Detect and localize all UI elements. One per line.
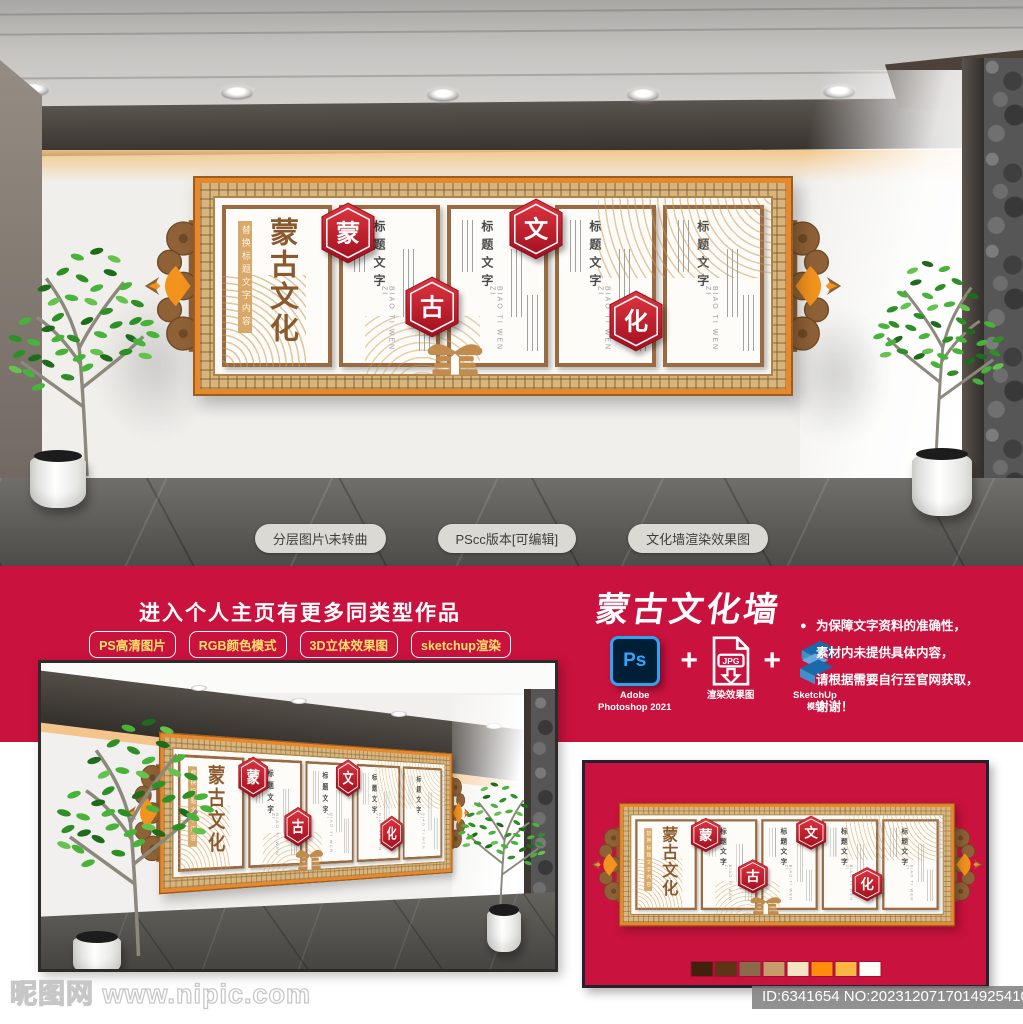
badge-character: 古 [420, 295, 444, 322]
recessed-light [391, 711, 407, 717]
ps-glyph: Ps [623, 650, 646, 672]
panel-pinyin: BIAO TI WEN ZI [326, 813, 333, 861]
render-caption-row: 分层图片\未转曲 PScc版本[可编辑] 文化墙渲染效果图 [0, 524, 1023, 553]
badge-character: 蒙 [336, 221, 360, 248]
color-swatch [691, 962, 712, 976]
arc-decoration [846, 814, 944, 860]
badge-character: 化 [624, 308, 648, 336]
color-palette [691, 962, 880, 976]
plant-pot-left [73, 935, 121, 972]
yurt-icon [294, 844, 324, 872]
recessed-light [222, 87, 252, 98]
render-caption-pill: 分层图片\未转曲 [255, 524, 386, 553]
title-panel: 替换标题文字内容 蒙古文化 [222, 205, 332, 367]
panel-pinyin: BIAO TI WEN ZI [784, 865, 792, 908]
color-swatch [739, 962, 760, 976]
ceiling-seam [0, 26, 1023, 35]
panel-pinyin: BIAO TI WEN ZI [704, 286, 718, 363]
badge-character: 化 [387, 825, 397, 842]
hexagon-badge: 文 [796, 815, 826, 850]
image-id-label: ID:6341654 NO:20231207170149254109 [752, 986, 1023, 1009]
text-placeholder-lines [527, 295, 538, 350]
badge-character: 文 [524, 216, 549, 244]
recessed-light [191, 685, 207, 691]
color-swatch [859, 962, 880, 976]
photoshop-icon: Ps [610, 636, 660, 686]
replace-note: 替换标题文字内容 [644, 828, 652, 891]
recessed-light [628, 89, 658, 100]
title-panel: 替换标题文字内容 蒙古文化 [635, 819, 697, 910]
color-swatch [787, 962, 808, 976]
recessed-light [291, 698, 307, 704]
calligraphy-title: 蒙古文化 [268, 217, 297, 345]
badge-character: 文 [343, 769, 355, 787]
feature-pill-row: PS高清图片 RGB颜色模式 3D立体效果图 sketchup渲染 [78, 631, 522, 658]
site-watermark: 昵图网 www.nipic.com [10, 972, 311, 1011]
text-placeholder-lines [313, 771, 318, 804]
hexagon-badge: 古 [738, 859, 768, 894]
text-placeholder-lines [806, 870, 812, 901]
plant-right [852, 240, 1020, 466]
arc-decoration [598, 196, 773, 278]
text-placeholder-lines [364, 773, 369, 805]
bullet-icon: ● [800, 613, 807, 640]
notice-line: 素材内未提供具体内容， [816, 640, 1014, 667]
yurt-icon [749, 893, 783, 917]
stock-design-preview-page: 替换标题文字内容 蒙古文化 标题文字 BIAO TI WEN ZI 标题文字 [0, 0, 1023, 1024]
tool-label: 渲染效果图 [707, 690, 755, 702]
hexagon-badge: 蒙 [691, 818, 721, 853]
ceiling-seam [0, 6, 1023, 15]
text-placeholder-lines [462, 220, 473, 272]
badge-character: 蒙 [699, 827, 713, 843]
panel-pinyin: BIAO TI WEN ZI [905, 865, 913, 908]
plant-pot-right [487, 908, 521, 952]
notice-line: 谢谢！ [816, 694, 1014, 721]
calligraphy-title: 蒙古文化 [661, 826, 677, 898]
badge-character: 文 [804, 825, 818, 841]
wall-inner: 替换标题文字内容 蒙古文化 标题文字 BIAO TI WEN ZI 标题文字 [213, 196, 773, 376]
render-caption-pill: PScc版本[可编辑] [438, 524, 577, 553]
preview-flat-thumbnail: 替换标题文字内容 蒙古文化 标题文字 BIAO TI WEN ZI 标题文字 [582, 760, 989, 988]
culture-wall-slot: 替换标题文字内容 蒙古文化 标题文字 BIAO TI WEN ZI 标题文字 [619, 803, 955, 926]
plant-left [38, 698, 251, 960]
photoshop-tool: Ps AdobePhotoshop 2021 [598, 636, 671, 715]
notice-line: 请根据需要自行至官网获取， [816, 667, 1014, 694]
hexagon-badge: 古 [284, 806, 311, 847]
preview-room-thumbnail: 替换标题文字内容 蒙古文化 标题文字 BIAO TI WEN ZI 标题文字 [38, 660, 558, 972]
panel-pinyin: BIAO TI WEN ZI [488, 286, 502, 363]
culture-wall: 替换标题文字内容 蒙古文化 标题文字 BIAO TI WEN ZI 标题文字 [619, 803, 955, 926]
text-placeholder-lines [344, 819, 349, 853]
text-placeholder-lines [743, 295, 754, 350]
arc-decoration [376, 759, 445, 808]
yurt-icon [425, 336, 485, 378]
replace-note: 替换标题文字内容 [238, 221, 252, 333]
hexagon-badge: 文 [336, 758, 361, 797]
text-placeholder-lines [927, 870, 933, 901]
color-swatch [835, 962, 856, 976]
color-swatch [715, 962, 736, 976]
feature-pill: RGB颜色模式 [189, 631, 287, 658]
culture-wall: 替换标题文字内容 蒙古文化 标题文字 BIAO TI WEN ZI 标题文字 [193, 176, 793, 396]
panel-title: 标题文字 [780, 828, 787, 868]
feature-pill: PS高清图片 [89, 631, 176, 658]
text-placeholder-lines [830, 828, 836, 857]
wall-inner: 替换标题文字内容 蒙古文化 标题文字 BIAO TI WEN ZI 标题文字 [630, 814, 944, 915]
hexagon-badge: 化 [380, 815, 402, 852]
hexagon-badge: 化 [852, 867, 882, 902]
panel-title: 标题文字 [481, 220, 493, 292]
plant-pot-left [30, 454, 86, 508]
hexagon-badge: 文 [509, 198, 563, 260]
panel-pinyin: BIAO TI WEN ZI [419, 813, 424, 857]
hexagon-badge: 古 [405, 276, 459, 338]
recessed-light [428, 89, 458, 100]
text-placeholder-lines [434, 818, 438, 849]
wall-frame: 替换标题文字内容 蒙古文化 标题文字 BIAO TI WEN ZI 标题文字 [619, 803, 955, 926]
tool-label: AdobePhotoshop 2021 [598, 690, 671, 715]
plant-left [0, 228, 192, 480]
notice-text: ● 为保障文字资料的准确性， 素材内未提供具体内容， 请根据需要自行至官网获取，… [800, 613, 1014, 721]
badge-character: 化 [860, 876, 874, 892]
panel-title: 标题文字 [322, 771, 328, 816]
jpg-tool: JPG 渲染效果图 [707, 636, 755, 702]
jpg-glyph: JPG [722, 656, 739, 666]
color-swatch [763, 962, 784, 976]
text-placeholder-lines [570, 220, 581, 272]
badge-character: 古 [292, 817, 304, 836]
product-title: 蒙古文化墙 [593, 582, 785, 631]
wall-fret-border: 替换标题文字内容 蒙古文化 标题文字 BIAO TI WEN ZI 标题文字 [200, 183, 786, 389]
render-caption-pill: 文化墙渲染效果图 [628, 524, 768, 553]
wall-frame: 替换标题文字内容 蒙古文化 标题文字 BIAO TI WEN ZI 标题文字 [193, 176, 793, 396]
feature-pill: 3D立体效果图 [300, 631, 398, 658]
hexagon-badge: 蒙 [321, 202, 375, 264]
feature-pill: sketchup渲染 [411, 631, 511, 658]
color-swatch [811, 962, 832, 976]
room-render-main: 替换标题文字内容 蒙古文化 标题文字 BIAO TI WEN ZI 标题文字 [0, 0, 1023, 566]
plant-pot-right [912, 452, 972, 516]
notice-line: 为保障文字资料的准确性， [816, 613, 1014, 640]
culture-wall-slot: 替换标题文字内容 蒙古文化 标题文字 BIAO TI WEN ZI 标题文字 [193, 176, 793, 396]
text-placeholder-lines [770, 828, 776, 857]
badge-character: 古 [746, 868, 760, 884]
jpg-file-icon: JPG [710, 636, 752, 686]
hexagon-badge: 化 [609, 290, 663, 352]
plus-icon: + [763, 644, 781, 678]
wall-fret-border: 替换标题文字内容 蒙古文化 标题文字 BIAO TI WEN ZI 标题文字 [623, 807, 951, 922]
plus-icon: + [680, 644, 698, 678]
promo-headline: 进入个人主页有更多同类型作品 [78, 597, 522, 627]
plant-right [439, 771, 558, 917]
